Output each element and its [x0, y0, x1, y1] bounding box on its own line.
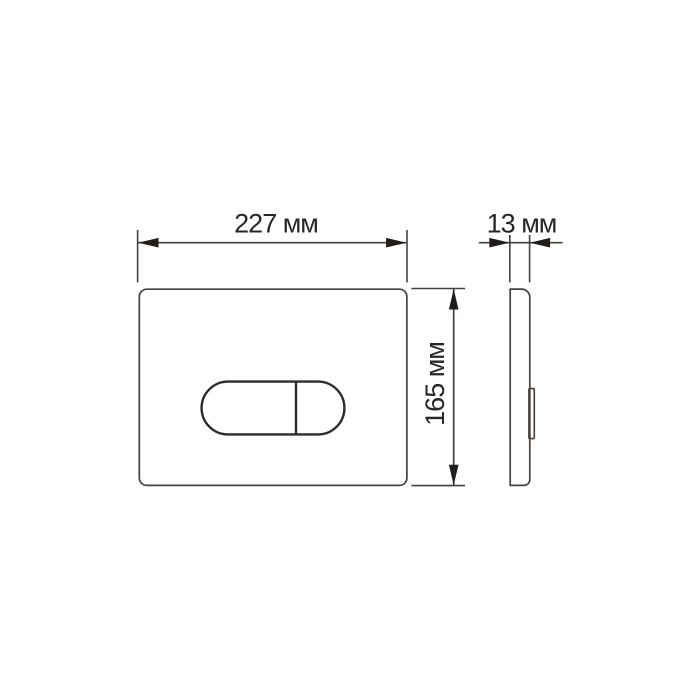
svg-text:165 мм: 165 мм — [420, 342, 450, 426]
svg-text:227 мм: 227 мм — [234, 209, 318, 239]
svg-text:13 мм: 13 мм — [487, 209, 557, 239]
